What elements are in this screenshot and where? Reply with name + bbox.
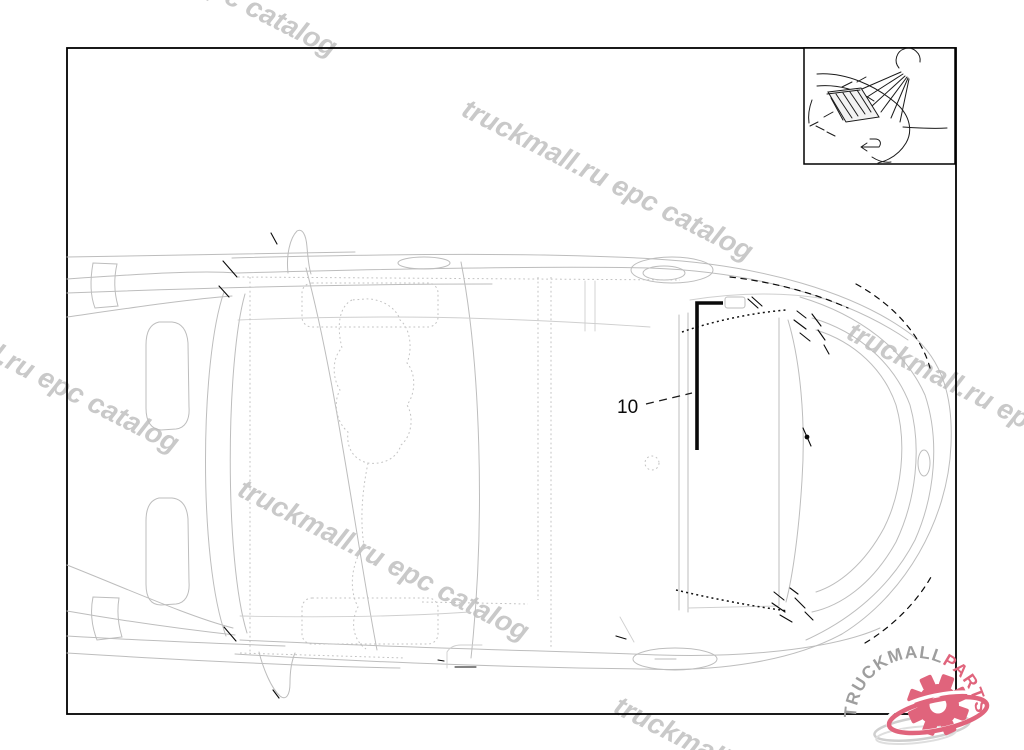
door-panel — [302, 598, 438, 644]
part-10-callout: 10 — [617, 297, 745, 450]
car-line — [238, 317, 650, 327]
watermark-text: truckmall.ru epc catalog — [233, 473, 534, 647]
car-line — [306, 268, 377, 650]
catalog-page: truckmall.ru epc catalog truckmall.ru ep… — [0, 0, 1024, 750]
rear-window-frame — [688, 606, 779, 608]
car-line — [816, 330, 902, 592]
car-line — [91, 263, 118, 308]
side-mirror — [287, 230, 311, 274]
detail-marks — [219, 233, 931, 698]
car-line — [146, 498, 189, 605]
body-outline — [232, 254, 951, 669]
car-line — [67, 272, 237, 279]
car-line — [206, 292, 227, 636]
car-line — [240, 628, 880, 655]
watermark-text: truckmall.ru epc catalog — [0, 285, 184, 459]
car-line — [67, 284, 492, 293]
watermark-text: truckmall.ru epc catalog — [457, 93, 758, 267]
car-line — [643, 266, 685, 280]
car-line — [92, 597, 122, 640]
detail-mark — [748, 297, 762, 308]
latch-detail — [772, 588, 813, 622]
door-panel — [302, 283, 438, 327]
car-line — [645, 456, 659, 470]
blind-end-cap — [725, 297, 745, 308]
watermark-text: truckmall.ru epc catalog — [609, 690, 910, 750]
side-mirror — [259, 652, 295, 698]
watermark-text: truckmall.ru epc catalog — [41, 0, 342, 63]
car-line — [237, 267, 908, 340]
leader-line — [646, 393, 692, 404]
inset-detail-box — [804, 48, 955, 164]
detail-mark — [865, 577, 931, 643]
truckmall-parts-logo: TRUCKMALLPARTS — [840, 642, 993, 747]
console-outline — [334, 299, 414, 463]
detail-mark — [219, 261, 237, 641]
detail-mark — [271, 233, 279, 698]
car-line — [690, 294, 830, 300]
fuel-door-mark — [918, 450, 930, 476]
car-line — [398, 257, 450, 269]
parts-diagram: truckmall.ru epc catalog truckmall.ru ep… — [0, 0, 1024, 750]
car-line — [230, 294, 247, 633]
detail-mark — [805, 435, 810, 440]
part-10-label: 10 — [617, 397, 638, 418]
rear-window-frame — [786, 320, 803, 602]
door-line — [238, 277, 680, 280]
part-10-sunshade-line — [697, 303, 723, 450]
car-line — [67, 296, 232, 317]
